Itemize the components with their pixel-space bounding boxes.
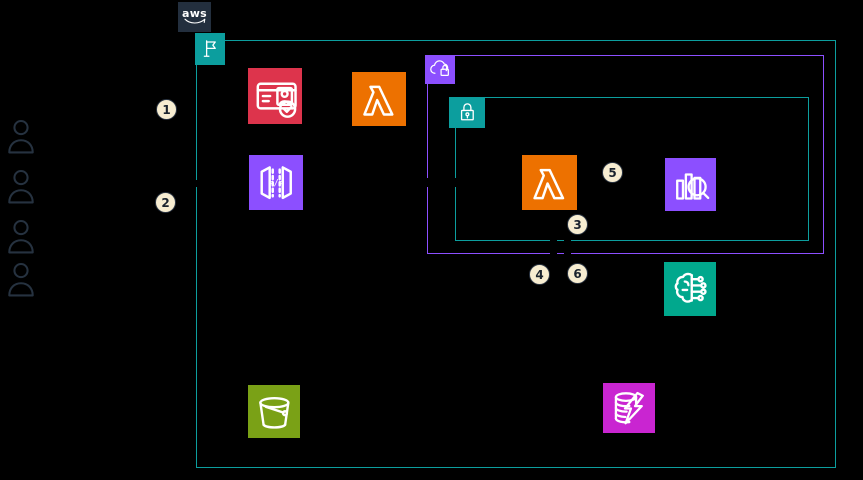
border-gap [194, 180, 200, 187]
storage-bucket-node [248, 385, 300, 438]
lambda-node-a [352, 72, 406, 126]
analytics-node [665, 158, 716, 211]
border-gap [564, 237, 571, 243]
user-icon [6, 218, 36, 254]
api-gateway-glyph-text: </> [268, 178, 284, 188]
step-badge-5: 5 [602, 162, 623, 183]
step-badge-6: 6 [567, 263, 588, 284]
diagram-canvas: aws [0, 0, 863, 480]
user-icon [6, 118, 36, 154]
step-badge-1: 1 [156, 99, 177, 120]
user-3 [6, 218, 36, 254]
database-node [603, 383, 655, 433]
vpc-group-icon [425, 55, 455, 84]
private-subnet-box [455, 97, 809, 241]
lambda-icon [526, 159, 573, 206]
step-badge-2: 2 [155, 192, 176, 213]
database-lightning-icon [607, 387, 652, 430]
step-badge-3: 3 [567, 214, 588, 235]
flag-icon [198, 36, 222, 62]
border-gap [425, 178, 431, 187]
aws-smile-icon [183, 18, 207, 26]
lambda-node-b [522, 155, 577, 210]
aws-account-group-icon [195, 33, 225, 65]
machine-learning-node [664, 262, 716, 316]
border-gap [453, 178, 459, 187]
bucket-icon [252, 389, 297, 435]
border-gap [564, 250, 571, 256]
bar-chart-magnifier-icon [669, 162, 713, 208]
border-gap [550, 237, 557, 243]
cloud-lock-icon [428, 58, 452, 81]
aws-cloud-logo: aws [178, 2, 211, 32]
user-icon [6, 261, 36, 297]
code-brackets-icon: </> [253, 159, 299, 206]
api-gateway-node: </> [249, 155, 303, 210]
identity-service-node [248, 68, 302, 124]
private-subnet-group-icon [449, 97, 485, 128]
brain-circuit-icon [668, 266, 713, 312]
border-gap [550, 250, 557, 256]
lambda-icon [356, 76, 402, 122]
user-2 [6, 168, 36, 204]
id-card-check-icon [252, 72, 298, 120]
user-1 [6, 118, 36, 154]
user-4 [6, 261, 36, 297]
step-badge-4: 4 [529, 264, 550, 285]
user-icon [6, 168, 36, 204]
padlock-icon [453, 100, 482, 125]
